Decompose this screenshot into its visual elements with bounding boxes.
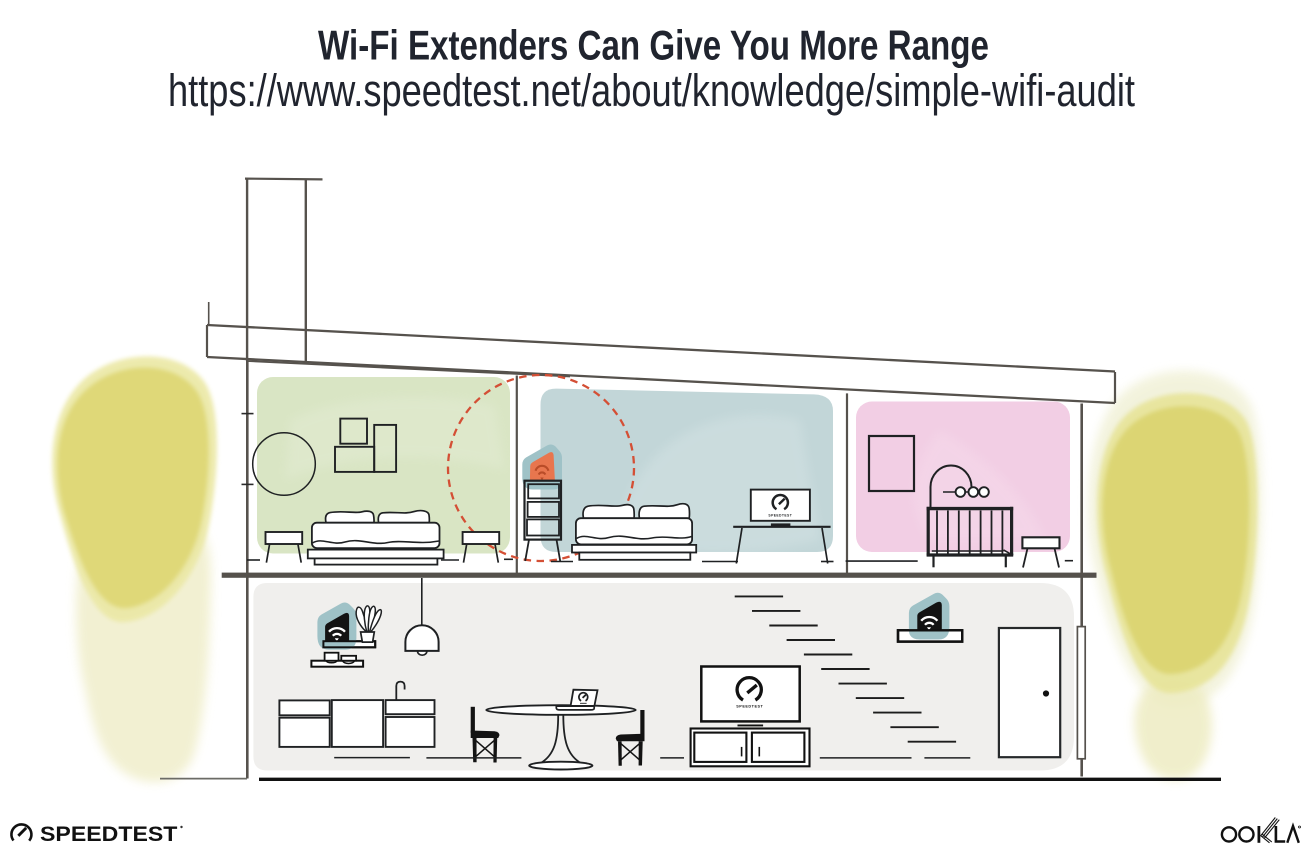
- svg-text:Wi-Fi Extenders Can Give You M: Wi-Fi Extenders Can Give You More Range: [318, 22, 989, 69]
- svg-text:SPEEDTEST: SPEEDTEST: [768, 514, 792, 518]
- svg-text:SPEEDTEST: SPEEDTEST: [736, 704, 763, 708]
- svg-text:SPEEDTEST: SPEEDTEST: [40, 822, 177, 846]
- svg-text:https://www.speedtest.net/abou: https://www.speedtest.net/about/knowledg…: [168, 65, 1135, 116]
